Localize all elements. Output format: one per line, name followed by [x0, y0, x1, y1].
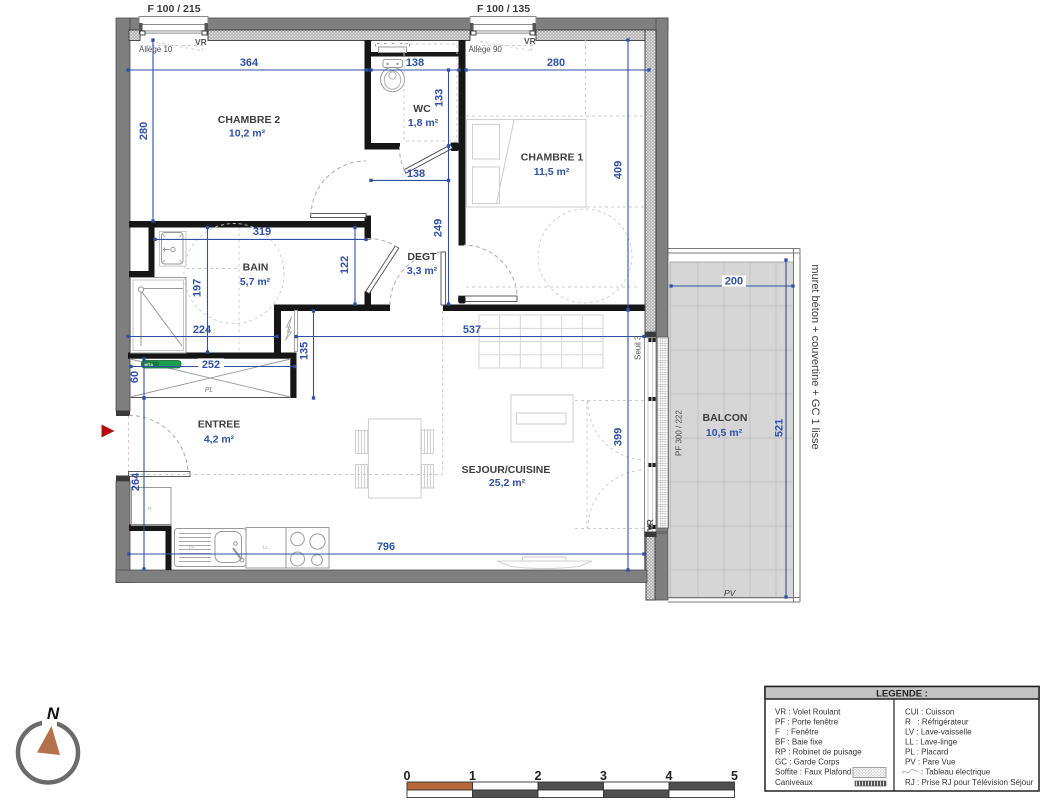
svg-text:3,3 m²: 3,3 m² — [407, 265, 438, 277]
svg-text:ENTREE: ENTREE — [198, 419, 241, 431]
svg-text:2: 2 — [535, 769, 542, 783]
svg-text:VR: VR — [195, 37, 207, 47]
svg-text:319: 319 — [253, 226, 271, 238]
svg-text:LEGENDE :: LEGENDE : — [876, 689, 928, 700]
svg-text:LL : Lave-linge: LL : Lave-linge — [905, 738, 958, 747]
svg-text:5,7 m²: 5,7 m² — [240, 276, 271, 288]
svg-text:WC: WC — [413, 103, 431, 115]
svg-text:DEGT: DEGT — [407, 251, 437, 263]
svg-text:Allège 10: Allège 10 — [139, 45, 173, 54]
svg-text:N: N — [47, 704, 60, 723]
svg-text:252: 252 — [202, 359, 220, 371]
svg-text:10,5 m²: 10,5 m² — [706, 427, 743, 439]
svg-text:PL: PL — [205, 387, 214, 394]
svg-text:280: 280 — [138, 122, 150, 140]
svg-text:GC : Garde Corps: GC : Garde Corps — [775, 758, 839, 767]
svg-text:PF : Porte fenêtre: PF : Porte fenêtre — [775, 718, 839, 727]
svg-text:1,8 m²: 1,8 m² — [408, 117, 439, 129]
svg-text:BAIN: BAIN — [243, 262, 269, 274]
svg-text:1: 1 — [469, 769, 476, 783]
svg-text:200: 200 — [725, 276, 743, 288]
svg-text:LV: LV — [189, 545, 194, 550]
svg-text:muret béton + couvertine + GC: muret béton + couvertine + GC 1 lisse — [809, 264, 821, 449]
svg-text:5: 5 — [731, 769, 738, 783]
svg-text:264: 264 — [130, 472, 142, 491]
svg-text:LL: LL — [263, 545, 269, 550]
svg-text:224: 224 — [193, 324, 212, 336]
svg-text:4: 4 — [666, 769, 673, 783]
svg-text:CHAMBRE 2: CHAMBRE 2 — [218, 114, 281, 126]
svg-text:BF : Baie fixe: BF : Baie fixe — [775, 738, 823, 747]
svg-text:F : Fenêtre: F : Fenêtre — [775, 728, 819, 737]
svg-text:25,2 m²: 25,2 m² — [489, 477, 526, 489]
svg-text:Caniveaux: Caniveaux — [775, 778, 813, 787]
svg-text:364: 364 — [240, 57, 259, 69]
svg-text:197: 197 — [192, 279, 204, 297]
svg-text:796: 796 — [377, 541, 395, 553]
svg-text:3: 3 — [600, 769, 607, 783]
svg-text:521: 521 — [774, 419, 786, 437]
svg-text:138: 138 — [407, 168, 425, 180]
svg-text:VR: VR — [645, 519, 655, 531]
svg-text:VR: VR — [524, 36, 536, 46]
svg-text:122: 122 — [339, 256, 351, 274]
svg-text:Soffite : Faux Plafond: Soffite : Faux Plafond — [775, 768, 851, 777]
svg-text:135: 135 — [299, 342, 311, 360]
svg-text:Seuil 3: Seuil 3 — [634, 335, 643, 360]
svg-text:280: 280 — [547, 57, 565, 69]
svg-text:SEJOUR/CUISINE: SEJOUR/CUISINE — [462, 464, 551, 476]
svg-text:11,5 m²: 11,5 m² — [534, 166, 570, 178]
svg-text:Allège 90: Allège 90 — [469, 45, 503, 54]
svg-text:249: 249 — [433, 219, 445, 237]
svg-text:F 100 / 215: F 100 / 215 — [147, 3, 200, 15]
svg-text:R : Réfrigérateur: R : Réfrigérateur — [905, 718, 969, 727]
svg-text:409: 409 — [613, 161, 625, 179]
svg-text:: Tableau électrique: : Tableau électrique — [921, 768, 991, 777]
svg-text:PV : Pare Vue: PV : Pare Vue — [905, 758, 956, 767]
svg-text:60: 60 — [129, 371, 141, 383]
svg-text:CUI : Cuisson: CUI : Cuisson — [905, 708, 954, 717]
svg-text:138: 138 — [406, 57, 424, 69]
svg-text:F 100 / 135: F 100 / 135 — [477, 3, 530, 15]
svg-text:RP : Robinet de puisage: RP : Robinet de puisage — [775, 748, 862, 757]
svg-text:537: 537 — [463, 324, 481, 336]
svg-text:133: 133 — [434, 89, 446, 107]
svg-text:PF 300 / 222: PF 300 / 222 — [675, 410, 684, 456]
svg-text:0: 0 — [404, 769, 411, 783]
svg-text:RJ : Prise RJ pour Télévision: RJ : Prise RJ pour Télévision Séjour — [905, 778, 1034, 787]
svg-text:CHAMBRE 1: CHAMBRE 1 — [521, 152, 584, 164]
svg-text:LV : Lave-vaisselle: LV : Lave-vaisselle — [905, 728, 972, 737]
svg-text:PL : Placard: PL : Placard — [905, 748, 948, 757]
svg-text:399: 399 — [613, 428, 625, 446]
svg-text:4,2 m²: 4,2 m² — [204, 434, 235, 446]
svg-text:VR : Volet Roulant: VR : Volet Roulant — [775, 708, 841, 717]
svg-text:BALCON: BALCON — [703, 412, 748, 424]
svg-text:PV: PV — [724, 588, 737, 598]
svg-text:10,2 m²: 10,2 m² — [229, 128, 266, 140]
